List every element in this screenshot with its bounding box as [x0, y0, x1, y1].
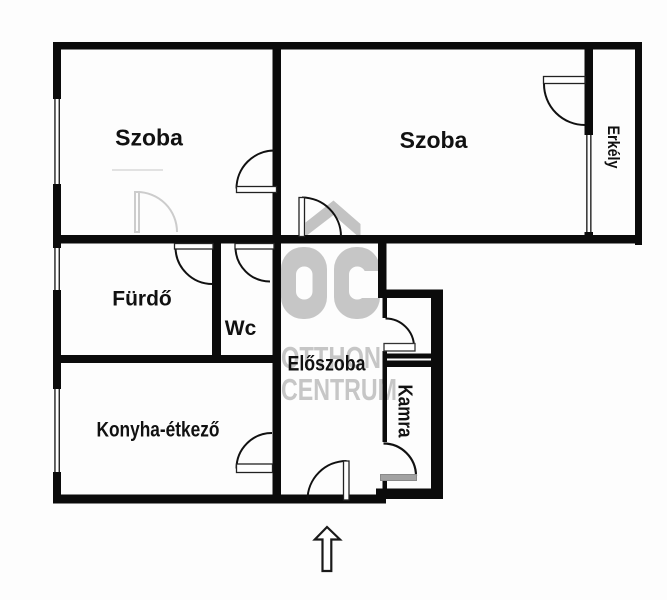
- svg-text:Szoba: Szoba: [115, 125, 183, 151]
- svg-text:CENTRUM: CENTRUM: [281, 372, 397, 407]
- svg-text:Szoba: Szoba: [400, 127, 468, 153]
- svg-text:Konyha-étkező: Konyha-étkező: [97, 419, 220, 442]
- svg-text:Wc: Wc: [225, 317, 257, 340]
- svg-text:Kamra: Kamra: [394, 385, 416, 439]
- svg-text:Erkély: Erkély: [604, 126, 622, 170]
- svg-text:Előszoba: Előszoba: [288, 353, 366, 376]
- svg-text:Fürdő: Fürdő: [112, 288, 171, 311]
